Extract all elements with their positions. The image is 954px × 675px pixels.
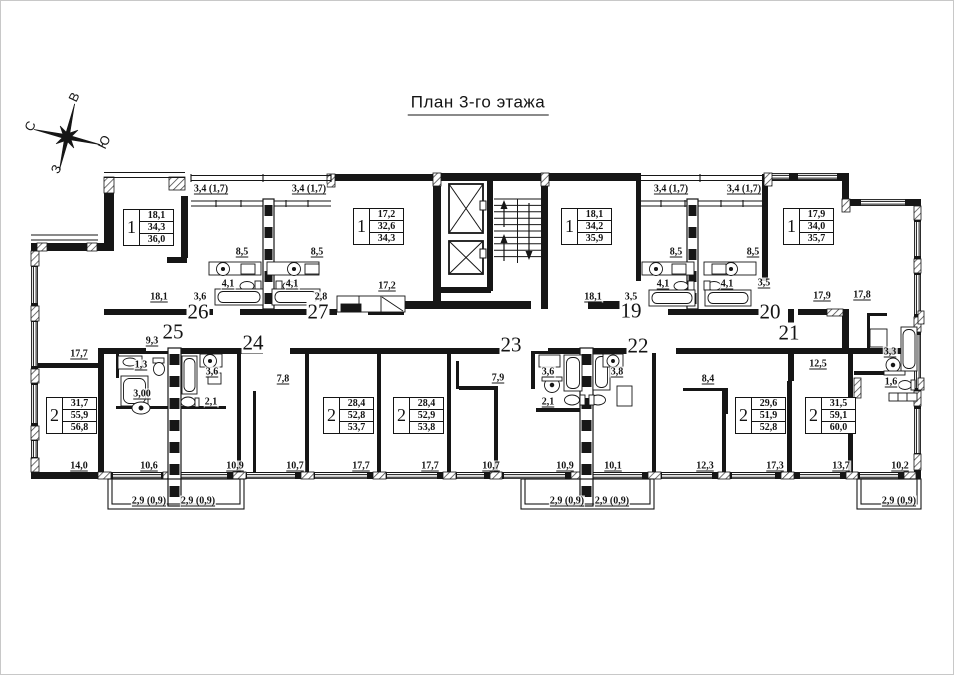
- unit-info-table: 118,134,235,9: [561, 208, 612, 245]
- dimension-label: 10,7: [481, 461, 501, 472]
- apartment-number: 22: [627, 336, 650, 357]
- dimension-label: 2,1: [541, 397, 556, 408]
- unit-info-table: 117,232,634,3: [353, 208, 404, 245]
- dimension-label: 17,7: [420, 461, 440, 472]
- dimension-label: 3,6: [541, 367, 556, 378]
- unit-info-table: 229,651,952,8: [735, 397, 786, 434]
- compass-direction-label: С: [21, 118, 39, 133]
- area-value: 34,3: [370, 233, 403, 244]
- labels-layer: 3,4 (1,7)3,4 (1,7)3,4 (1,7)3,4 (1,7)8,58…: [1, 1, 953, 674]
- dimension-label: 13,7: [831, 461, 851, 472]
- unit-info-table: 118,134,336,0: [123, 209, 174, 246]
- dimension-label: 17,7: [351, 461, 371, 472]
- dimension-label: 14,0: [69, 461, 89, 472]
- area-value: 59,1: [822, 410, 855, 422]
- dimension-label: 18,1: [149, 292, 169, 303]
- area-value: 51,9: [752, 410, 785, 422]
- area-value: 34,2: [578, 221, 611, 233]
- dimension-label: 2,9 (0,9): [180, 496, 216, 507]
- area-value: 55,9: [63, 410, 96, 422]
- dimension-label: 2,9 (0,9): [881, 496, 917, 507]
- room-count: 2: [47, 398, 63, 433]
- area-value: 34,3: [140, 222, 173, 234]
- floor-plan-page: План 3-го этажа 3,4 (1,7)3,4 (1,7)3,4 (1…: [0, 0, 954, 675]
- area-value: 36,0: [140, 234, 173, 245]
- dimension-label: 3,4 (1,7): [291, 184, 327, 195]
- room-count: 1: [562, 209, 578, 244]
- unit-info-table: 228,452,853,7: [323, 397, 374, 434]
- dimension-label: 8,5: [235, 247, 250, 258]
- dimension-label: 1,6: [884, 377, 899, 388]
- dimension-label: 12,5: [808, 359, 828, 370]
- area-value: 53,7: [340, 422, 373, 433]
- dimension-label: 2,9 (0,9): [549, 496, 585, 507]
- dimension-label: 2,1: [204, 397, 219, 408]
- dimension-label: 17,9: [812, 291, 832, 302]
- compass-direction-label: З: [48, 162, 65, 176]
- dimension-label: 8,5: [310, 247, 325, 258]
- room-count: 2: [736, 398, 752, 433]
- apartment-number: 27: [307, 302, 330, 323]
- area-value: 52,9: [410, 410, 443, 422]
- room-count: 1: [784, 209, 800, 244]
- dimension-label: 3,8: [610, 367, 625, 378]
- dimension-label: 10,6: [139, 461, 159, 472]
- room-count: 1: [124, 210, 140, 245]
- apartment-number: 23: [500, 335, 523, 356]
- area-value: 56,8: [63, 422, 96, 433]
- apartment-number: 26: [187, 302, 210, 323]
- dimension-label: 17,2: [377, 281, 397, 292]
- area-value: 18,1: [140, 210, 173, 222]
- dimension-label: 17,3: [765, 461, 785, 472]
- apartment-number: 25: [162, 322, 185, 343]
- room-count: 2: [324, 398, 340, 433]
- area-value: 34,0: [800, 221, 833, 233]
- apartment-number: 21: [778, 323, 801, 344]
- area-value: 18,1: [578, 209, 611, 221]
- dimension-label: 2,9 (0,9): [594, 496, 630, 507]
- room-count: 2: [806, 398, 822, 433]
- dimension-label: 3,00: [132, 389, 152, 400]
- dimension-label: 7,9: [491, 373, 506, 384]
- unit-info-table: 231,559,160,0: [805, 397, 856, 434]
- area-value: 52,8: [752, 422, 785, 433]
- dimension-label: 3,4 (1,7): [726, 184, 762, 195]
- dimension-label: 10,9: [555, 461, 575, 472]
- dimension-label: 3,6: [205, 367, 220, 378]
- room-count: 2: [394, 398, 410, 433]
- area-value: 28,4: [410, 398, 443, 410]
- dimension-label: 8,5: [746, 247, 761, 258]
- dimension-label: 2,9 (0,9): [131, 496, 167, 507]
- dimension-label: 4,1: [656, 279, 671, 290]
- dimension-label: 12,3: [695, 461, 715, 472]
- area-value: 17,2: [370, 209, 403, 221]
- dimension-label: 3,4 (1,7): [193, 184, 229, 195]
- dimension-label: 4,1: [285, 279, 300, 290]
- dimension-label: 4,1: [221, 279, 236, 290]
- area-value: 60,0: [822, 422, 855, 433]
- dimension-label: 10,2: [890, 461, 910, 472]
- room-count: 1: [354, 209, 370, 244]
- dimension-label: 1,3: [134, 360, 149, 371]
- area-value: 28,4: [340, 398, 373, 410]
- apartment-number: 19: [620, 301, 643, 322]
- unit-info-table: 228,452,953,8: [393, 397, 444, 434]
- area-value: 31,5: [822, 398, 855, 410]
- dimension-label: 3,3: [883, 347, 898, 358]
- dimension-label: 9,3: [145, 336, 160, 347]
- area-value: 32,6: [370, 221, 403, 233]
- dimension-label: 10,9: [225, 461, 245, 472]
- unit-info-table: 231,755,956,8: [46, 397, 97, 434]
- compass-direction-label: Ю: [94, 133, 113, 151]
- dimension-label: 17,8: [852, 290, 872, 301]
- dimension-label: 10,7: [285, 461, 305, 472]
- dimension-label: 3,5: [757, 278, 772, 289]
- dimension-label: 18,1: [583, 292, 603, 303]
- area-value: 52,8: [340, 410, 373, 422]
- dimension-label: 10,1: [603, 461, 623, 472]
- compass-direction-label: В: [65, 90, 82, 104]
- apartment-number: 24: [242, 333, 265, 354]
- area-value: 53,8: [410, 422, 443, 433]
- area-value: 29,6: [752, 398, 785, 410]
- area-value: 35,9: [578, 233, 611, 244]
- area-value: 17,9: [800, 209, 833, 221]
- unit-info-table: 117,934,035,7: [783, 208, 834, 245]
- dimension-label: 17,7: [69, 349, 89, 360]
- dimension-label: 7,8: [276, 374, 291, 385]
- dimension-label: 4,1: [720, 279, 735, 290]
- area-value: 31,7: [63, 398, 96, 410]
- dimension-label: 8,5: [669, 247, 684, 258]
- area-value: 35,7: [800, 233, 833, 244]
- apartment-number: 20: [759, 302, 782, 323]
- dimension-label: 3,4 (1,7): [653, 184, 689, 195]
- dimension-label: 8,4: [701, 374, 716, 385]
